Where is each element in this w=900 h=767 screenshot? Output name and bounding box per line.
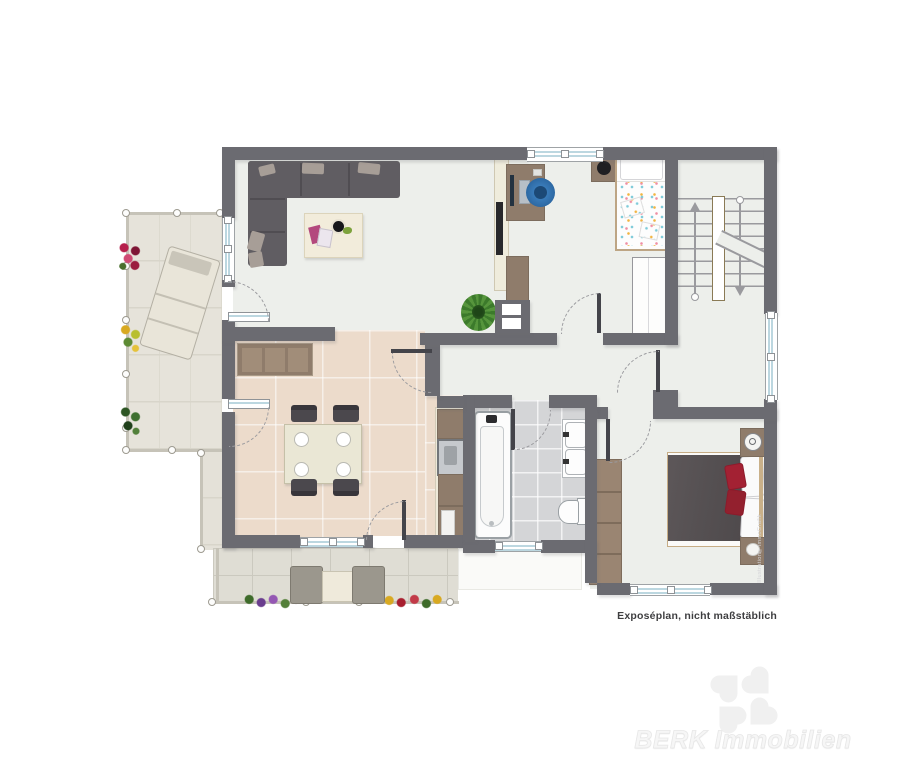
monitor: [510, 175, 514, 206]
lounger-seam: [156, 293, 206, 310]
window-post: [667, 586, 675, 594]
plan-caption: Exposéplan, nicht maßstäblich: [480, 610, 777, 622]
terrace-table: [322, 571, 353, 602]
wardrobe: [632, 257, 668, 336]
clover-leaf-shape: [751, 675, 769, 693]
red-cushion: [724, 463, 747, 491]
railing-post: [168, 446, 176, 454]
bathtub-inner: [480, 426, 504, 527]
decor-plant: [343, 227, 352, 234]
stair-line-end: [691, 293, 699, 301]
flower-box: [382, 591, 442, 612]
exterior-wall: [404, 535, 463, 548]
interior-wall: [665, 160, 678, 345]
bathtub-drain: [489, 521, 494, 526]
railing-post: [122, 209, 130, 217]
office-cabinet: [506, 256, 529, 306]
interior-wall: [653, 407, 777, 419]
toilet-bowl: [558, 500, 579, 524]
sofa-seam: [348, 163, 350, 196]
dining-chair: [333, 405, 359, 422]
exterior-wall: [222, 535, 300, 548]
interior-wall: [585, 408, 597, 583]
magazine: [317, 228, 334, 248]
interior-wall: [222, 327, 335, 341]
exterior-wall: [222, 160, 235, 218]
stair-down-arrow: [735, 287, 745, 296]
railing-post: [208, 598, 216, 606]
place-setting: [336, 432, 351, 447]
illustration-credit: Illustration©ImmoGrafik: [757, 514, 773, 590]
window-post: [329, 538, 337, 546]
place-setting: [294, 462, 309, 477]
sofa-cushion: [248, 251, 264, 268]
railing: [200, 452, 203, 550]
brand-watermark: BERK Immobilien: [598, 726, 888, 755]
plant-center: [472, 305, 485, 319]
window-post: [527, 150, 535, 158]
railing-post: [446, 598, 454, 606]
red-cushion: [724, 489, 746, 516]
terrace-chair: [352, 566, 385, 604]
clover-leaf-shape: [719, 675, 737, 693]
window-post: [767, 395, 775, 403]
wardrobe-door-seam: [648, 258, 649, 335]
interior-wall: [437, 396, 463, 408]
basin-faucet: [563, 459, 569, 464]
lounger-seam: [148, 317, 198, 334]
interior-wall: [463, 395, 475, 540]
terrace-path: [202, 450, 224, 550]
sideboard-door: [287, 347, 309, 373]
railing-post: [197, 449, 205, 457]
pillow: [620, 158, 663, 180]
window-post: [704, 586, 712, 594]
railing-post: [122, 446, 130, 454]
terrace-slab: [458, 548, 582, 590]
double-bed: [667, 452, 766, 547]
illustration-credit-text: Illustration©ImmoGrafik: [757, 514, 763, 583]
floor-plan: Illustration©ImmoGrafik Exposéplan, nich…: [0, 0, 900, 767]
window-post: [495, 542, 503, 550]
railing-post: [173, 209, 181, 217]
office-chair-seat: [534, 186, 547, 199]
window-post: [767, 353, 775, 361]
interior-wall: [495, 300, 530, 333]
sofa-cushion: [302, 163, 324, 175]
dishwasher-front: [441, 510, 455, 537]
window-post: [357, 538, 365, 546]
tv: [496, 202, 503, 255]
dining-chair: [291, 405, 317, 422]
wall-niche: [502, 304, 521, 315]
window-post: [767, 311, 775, 319]
window-post: [535, 542, 543, 550]
flower-box: [118, 322, 143, 353]
sofa-cushion: [357, 162, 380, 175]
lamp-center: [749, 438, 756, 445]
interior-wall: [475, 395, 512, 408]
kitchen-cabinet: [437, 409, 465, 439]
place-setting: [294, 432, 309, 447]
potted-plant: [461, 294, 496, 331]
basin-faucet: [563, 432, 569, 437]
window-post: [300, 538, 308, 546]
railing-post: [197, 545, 205, 553]
railing: [216, 548, 219, 603]
sideboard: [237, 343, 313, 376]
window-post: [224, 216, 232, 224]
exterior-wall: [463, 540, 495, 553]
exterior-wall: [764, 147, 777, 314]
clover-logo-icon: [716, 670, 772, 728]
clover-leaf-shape: [719, 707, 737, 725]
flower-box: [116, 240, 143, 271]
office-chair: [526, 178, 555, 207]
sideboard-door: [241, 347, 263, 373]
place-setting: [336, 462, 351, 477]
railing-post: [122, 370, 130, 378]
rug: [304, 213, 363, 258]
kitchen-cabinet: [438, 474, 464, 506]
sideboard-door: [264, 347, 286, 373]
exterior-wall: [222, 345, 235, 399]
window-post: [224, 245, 232, 253]
sink-basin: [444, 446, 457, 465]
table-lamp: [744, 433, 762, 451]
window-post: [561, 150, 569, 158]
dining-chair: [291, 479, 317, 496]
window-post: [596, 150, 604, 158]
terrace-chair: [290, 566, 323, 604]
interior-wall: [420, 333, 557, 345]
exterior-wall: [222, 147, 527, 160]
wall-niche: [502, 318, 521, 329]
flower-box: [118, 404, 143, 436]
exterior-wall: [603, 147, 777, 160]
dining-chair: [333, 479, 359, 496]
exterior-wall: [597, 583, 630, 595]
clover-leaf-shape: [751, 707, 769, 725]
interior-wall: [549, 395, 597, 408]
stair-direction-line: [694, 210, 696, 294]
window-post: [630, 586, 638, 594]
sofa-seam: [250, 198, 285, 200]
desk-item: [533, 169, 542, 176]
table-lamp: [597, 161, 611, 175]
bathtub-faucet: [486, 415, 497, 423]
bathtub: [474, 411, 512, 539]
